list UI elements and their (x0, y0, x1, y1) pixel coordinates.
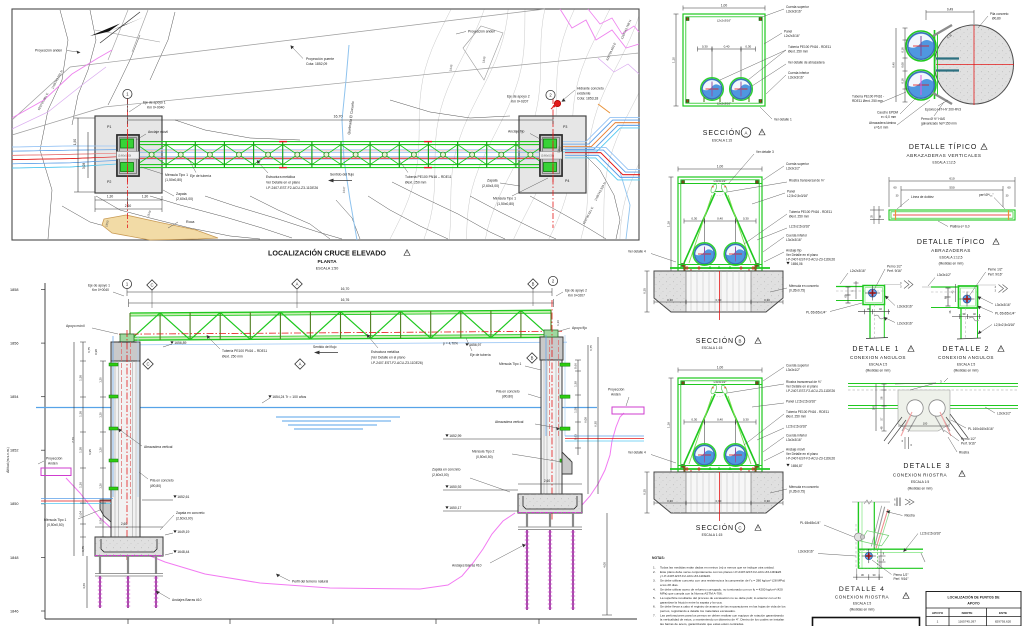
svg-text:B: B (531, 356, 534, 361)
svg-text:Riostra transversal de ⅜": Riostra transversal de ⅜" (786, 380, 822, 384)
svg-text:I-P-2407-EST-F2-ACU-Z3-11DE26: I-P-2407-EST-F2-ACU-Z3-11DE26 (786, 389, 835, 393)
svg-text:Andén: Andén (611, 393, 621, 397)
svg-text:la verticalidad de estos, y ma: la verticalidad de estos, y manteniendo … (660, 618, 785, 622)
svg-text:100: 100 (923, 422, 928, 426)
svg-text:1654,24 Tr = 100 años: 1654,24 Tr = 100 años (272, 395, 306, 399)
svg-text:ABRAZADERAS: ABRAZADERAS (931, 248, 971, 253)
svg-text:Eje de apoyo 2: Eje de apoyo 2 (507, 95, 530, 99)
svg-text:ESCALA 1:15: ESCALA 1:15 (702, 533, 723, 537)
svg-text:6,75: 6,75 (589, 345, 593, 351)
svg-text:1656,06: 1656,06 (791, 262, 803, 266)
svg-text:ESCALA 1:15: ESCALA 1:15 (712, 139, 732, 143)
svg-text:0,54: 0,54 (99, 518, 103, 524)
svg-text:Perno 1/2": Perno 1/2" (988, 268, 1003, 272)
svg-text:Ver detalle de abrazadera: Ver detalle de abrazadera (788, 61, 825, 65)
svg-text:ESCALA 1:12,5: ESCALA 1:12,5 (940, 256, 963, 260)
svg-text:16,70: 16,70 (334, 115, 343, 119)
svg-text:(2,60x3,00): (2,60x3,00) (176, 517, 193, 521)
svg-text:0,90: 0,90 (716, 298, 722, 302)
svg-text:Ménsula Tipo 2: Ménsula Tipo 2 (472, 450, 495, 454)
svg-text:Sentido del flujo: Sentido del flujo (313, 345, 337, 349)
svg-text:0,40: 0,40 (717, 417, 723, 421)
svg-text:existente: existente (577, 92, 591, 96)
svg-text:CONEXION RIOSTRA: CONEXION RIOSTRA (835, 595, 890, 600)
svg-text:Abrazadera lámina: Abrazadera lámina (869, 121, 896, 125)
svg-text:L3x3x1/2": L3x3x1/2" (786, 167, 800, 171)
svg-text:las barras de acero, garantiza: las barras de acero, garantizando que es… (660, 622, 744, 626)
svg-text:Abrazadera vertical: Abrazadera vertical (144, 445, 173, 449)
svg-text:6,30: 6,30 (594, 421, 598, 427)
svg-text:Estructura metálica: Estructura metálica (266, 175, 295, 179)
svg-text:C: C (150, 283, 153, 288)
svg-text:Anclajes Barras #10: Anclajes Barras #10 (172, 598, 202, 602)
svg-text:1,16: 1,16 (667, 422, 671, 428)
svg-text:Ménsula Tipo 1: Ménsula Tipo 1 (493, 197, 516, 201)
svg-text:Zapata: Zapata (487, 179, 498, 183)
svg-text:Anclaje móvil: Anclaje móvil (148, 130, 168, 134)
svg-text:(Medidas en mm): (Medidas en mm) (850, 608, 875, 612)
svg-text:P4: P4 (565, 179, 569, 183)
svg-text:Riostra: Riostra (959, 451, 969, 455)
svg-text:LOCALIZACIÓN DE PUNTOS DE: LOCALIZACIÓN DE PUNTOS DE (948, 595, 1001, 600)
svg-text:Abrazadera vertical: Abrazadera vertical (495, 420, 524, 424)
svg-text:CONEXION ANGULOS: CONEXION ANGULOS (850, 355, 906, 360)
svg-text:P2: P2 (107, 180, 111, 184)
svg-text:Caucho EPDM: Caucho EPDM (877, 111, 898, 115)
svg-text:APOYO: APOYO (967, 602, 980, 606)
svg-text:Ver detalle 4: Ver detalle 4 (628, 250, 646, 254)
svg-text:Línea de doblez: Línea de doblez (911, 195, 934, 199)
svg-text:1852: 1852 (10, 449, 18, 453)
svg-text:Km 0+0040: Km 0+0040 (92, 288, 109, 292)
svg-text:1,26: 1,26 (99, 447, 103, 453)
svg-text:ESCALA 1:5: ESCALA 1:5 (853, 602, 871, 606)
svg-text:Tubería PE100 PN16 - RDE11: Tubería PE100 PN16 - RDE11 (786, 410, 829, 414)
svg-text:Cuerda superior: Cuerda superior (786, 364, 810, 368)
svg-text:0,30: 0,30 (691, 417, 697, 421)
svg-text:1656,89: 1656,89 (174, 341, 186, 345)
svg-text:Tubería PE100 PN16 – RDE11: Tubería PE100 PN16 – RDE11 (405, 175, 452, 179)
svg-text:DETALLE 2: DETALLE 2 (942, 346, 989, 353)
svg-text:e=6,0 mm: e=6,0 mm (874, 126, 889, 130)
svg-text:L2,5x2,5x3/16": L2,5x2,5x3/16" (786, 425, 807, 429)
svg-text:1,38: 1,38 (574, 381, 578, 387)
svg-text:1,38: 1,38 (79, 447, 83, 453)
svg-text:1,30: 1,30 (107, 195, 114, 199)
svg-text:1,30: 1,30 (142, 195, 149, 199)
svg-text:3,08: 3,08 (82, 163, 86, 169)
svg-text:A: A (299, 362, 302, 367)
svg-text:(1,50x0,80): (1,50x0,80) (165, 178, 182, 182)
svg-text:1856: 1856 (10, 342, 18, 346)
svg-text:1,26: 1,26 (79, 482, 83, 488)
svg-text:galvanizado hef=150 mm: galvanizado hef=150 mm (921, 122, 957, 126)
svg-text:SECCIÓN: SECCIÓN (703, 128, 741, 137)
svg-text:Tubería PE100 PN16 - RDE11: Tubería PE100 PN16 - RDE11 (788, 45, 831, 49)
svg-text:6,75: 6,75 (87, 347, 91, 353)
svg-text:1846: 1846 (10, 609, 18, 613)
svg-text:(Ø0,80): (Ø0,80) (502, 395, 513, 399)
svg-text:0,30: 0,30 (743, 216, 749, 220)
svg-text:Ver detalle 1: Ver detalle 1 (774, 118, 792, 122)
svg-text:Se debe utilizar concreto con: Se debe utilizar concreto con una resist… (660, 579, 785, 583)
svg-text:(1,50x0,80): (1,50x0,80) (497, 202, 514, 206)
svg-text:L2,5x2,5x3/16": L2,5x2,5x3/16" (789, 225, 810, 229)
svg-text:Apoyo fijo: Apoyo fijo (572, 326, 587, 330)
svg-text:DETALLE TÍPICO: DETALLE TÍPICO (917, 237, 985, 246)
svg-text:PL 65x65x1/4": PL 65x65x1/4" (995, 312, 1016, 316)
svg-text:1,38: 1,38 (79, 411, 83, 417)
svg-text:Perf. 9/16": Perf. 9/16" (961, 442, 976, 446)
svg-text:Cuerda inferior: Cuerda inferior (786, 434, 808, 438)
svg-text:1647: 1647 (342, 186, 347, 193)
svg-text:1854: 1854 (10, 395, 18, 399)
svg-text:0,30: 0,30 (667, 499, 673, 503)
svg-text:L3x3x1/2": L3x3x1/2" (937, 273, 951, 277)
svg-text:LOCALIZACIÓN CRUCE ELEVADO: LOCALIZACIÓN CRUCE ELEVADO (268, 249, 386, 258)
svg-text:A: A (745, 131, 748, 136)
svg-text:Proyección puente: Proyección puente (306, 57, 334, 61)
svg-text:CONEXION RIOSTRA: CONEXION RIOSTRA (893, 473, 948, 478)
svg-text:160: 160 (872, 405, 876, 410)
svg-text:829793,620: 829793,620 (995, 620, 1012, 624)
svg-text:5.: 5. (653, 596, 656, 600)
svg-text:APOYO: APOYO (932, 611, 944, 615)
svg-text:0,40: 0,40 (717, 216, 723, 220)
svg-text:1,00: 1,00 (721, 3, 728, 7)
svg-text:0,30: 0,30 (691, 216, 697, 220)
svg-text:Anclaje fijo: Anclaje fijo (508, 130, 525, 134)
svg-text:4.: 4. (653, 587, 656, 591)
svg-text:L3x3x1/2": L3x3x1/2" (714, 179, 727, 183)
svg-text:Cuerda inferior: Cuerda inferior (786, 234, 808, 238)
svg-text:2,60: 2,60 (544, 479, 550, 483)
svg-text:Pila en concreto: Pila en concreto (150, 479, 174, 483)
svg-text:perf Ø⁹/₁₆": perf Ø⁹/₁₆" (979, 193, 994, 197)
svg-text:DETALLE 4: DETALLE 4 (839, 586, 885, 593)
svg-text:4,66: 4,66 (82, 583, 86, 589)
svg-text:Proyección: Proyección (46, 457, 62, 461)
svg-text:60: 60 (1007, 186, 1011, 190)
svg-text:L2x2x3/16": L2x2x3/16" (717, 19, 731, 23)
svg-text:(Ver Detalle en el plano: (Ver Detalle en el plano (371, 356, 405, 360)
svg-text:garantizar la fricción entre l: garantizar la fricción entre la zapata y… (660, 600, 723, 604)
svg-text:(Medidas en mm): (Medidas en mm) (866, 369, 891, 373)
svg-text:SECCIÓN: SECCIÓN (696, 336, 734, 345)
svg-text:B: B (739, 339, 742, 344)
svg-text:1,04: 1,04 (79, 511, 83, 517)
svg-text:0,30: 0,30 (667, 298, 673, 302)
svg-text:1650,17: 1650,17 (449, 506, 461, 510)
svg-text:Ver Detalle en el plano: Ver Detalle en el plano (786, 452, 818, 456)
svg-text:Riostra: Riostra (905, 514, 915, 518)
svg-text:L3x3x3/16": L3x3x3/16" (897, 305, 913, 309)
svg-text:a los 28 días.: a los 28 días. (660, 583, 679, 587)
svg-text:1.: 1. (653, 566, 656, 570)
svg-text:(2,60x3,00): (2,60x3,00) (482, 184, 499, 188)
svg-text:L2x2x3/16": L2x2x3/16" (897, 322, 913, 326)
svg-text:Anclajes Barras #10: Anclajes Barras #10 (452, 564, 482, 568)
svg-text:Øext. 250 mm: Øext. 250 mm (788, 50, 808, 54)
svg-text:0,30: 0,30 (743, 417, 749, 421)
svg-text:DETALLE 3: DETALLE 3 (903, 463, 950, 470)
svg-text:Tubería PE100 PN16 – RDE11: Tubería PE100 PN16 – RDE11 (222, 349, 267, 353)
svg-text:Perf. 9/16": Perf. 9/16" (988, 272, 1003, 276)
svg-text:2,60: 2,60 (125, 204, 132, 208)
svg-text:L2x2x3/16": L2x2x3/16" (784, 34, 800, 38)
svg-text:Ver detalle 3: Ver detalle 3 (756, 150, 774, 154)
svg-text:0,49: 0,49 (947, 8, 953, 12)
svg-text:pernos, registrando a detalle: pernos, registrando a detalle los materi… (660, 609, 736, 613)
svg-text:1,00: 1,00 (717, 164, 724, 168)
svg-text:Anclaje móvil: Anclaje móvil (786, 448, 805, 452)
svg-text:1652,99: 1652,99 (449, 434, 461, 438)
svg-text:1,16: 1,16 (667, 221, 671, 227)
svg-text:ESCALA 1:5: ESCALA 1:5 (869, 363, 887, 367)
svg-text:60: 60 (893, 186, 897, 190)
svg-text:Altitud (m.s.n.m.): Altitud (m.s.n.m.) (6, 447, 10, 473)
svg-text:Zapata en concreto: Zapata en concreto (432, 468, 461, 472)
svg-text:I-P-2407-EST-F2-ACU-Z3-11DE26: I-P-2407-EST-F2-ACU-Z3-11DE26 (786, 457, 835, 461)
svg-text:y I-P-2407-EST-F2-ACU-Z3-11DE2: y I-P-2407-EST-F2-ACU-Z3-11DE26. (660, 574, 711, 578)
svg-text:Roca: Roca (186, 220, 194, 224)
svg-text:1: 1 (937, 620, 939, 624)
svg-text:Ménsula Tipo 1: Ménsula Tipo 1 (499, 362, 522, 366)
svg-text:ESCALA 1:15: ESCALA 1:15 (702, 346, 723, 350)
svg-text:Eje de tubería: Eje de tubería (190, 174, 211, 178)
svg-text:(0,50x0,50): (0,50x0,50) (476, 455, 493, 459)
svg-text:0,16: 0,16 (901, 78, 905, 84)
svg-text:Ménsula Tipo 1: Ménsula Tipo 1 (44, 518, 67, 522)
svg-text:MPa) que cumpla con la Norma: MPa) que cumpla con la Norma ASTM A-706. (660, 592, 723, 596)
svg-text:(0,35x0,75): (0,35x0,75) (789, 490, 805, 494)
svg-text:L2,5x2,5x3/16": L2,5x2,5x3/16" (920, 532, 941, 536)
svg-text:L3x3x3/16": L3x3x3/16" (798, 550, 814, 554)
svg-text:16,76: 16,76 (341, 298, 350, 302)
svg-text:ESTE: ESTE (999, 611, 1007, 615)
svg-text:3.: 3. (653, 579, 656, 583)
svg-text:1650,92: 1650,92 (449, 485, 461, 489)
svg-text:I-P-2407-EST-F2-ACU-Z3-11DE26): I-P-2407-EST-F2-ACU-Z3-11DE26) (371, 361, 423, 365)
svg-text:Ø0,80: Ø0,80 (992, 17, 1001, 21)
svg-text:550: 550 (949, 186, 954, 190)
svg-text:Øext. 250 mm: Øext. 250 mm (222, 355, 243, 359)
svg-text:6,35: 6,35 (643, 288, 647, 294)
svg-text:Eje de apoyo 1: Eje de apoyo 1 (88, 284, 110, 288)
svg-text:PL 160x160x3/16": PL 160x160x3/16" (968, 427, 994, 431)
svg-text:Ménsula en concreto: Ménsula en concreto (789, 485, 819, 489)
svg-text:ABRAZADERAS VERTICALES: ABRAZADERAS VERTICALES (907, 153, 982, 158)
svg-text:Perf. 9/16": Perf. 9/16" (887, 269, 902, 273)
svg-text:Perf. 9/16": Perf. 9/16" (894, 577, 909, 581)
svg-text:0,66: 0,66 (574, 363, 578, 369)
svg-text:L3x3x3/16": L3x3x3/16" (786, 10, 802, 14)
svg-text:L3x3x1/2": L3x3x1/2" (997, 412, 1011, 416)
svg-text:Ménsula en concreto: Ménsula en concreto (789, 284, 819, 288)
svg-text:C: C (146, 362, 149, 367)
svg-text:6,75: 6,75 (81, 546, 85, 552)
svg-text:(Medidas en mm): (Medidas en mm) (939, 262, 964, 266)
svg-text:0,30: 0,30 (702, 44, 708, 48)
svg-text:0,08: 0,08 (901, 62, 905, 68)
svg-text:7.: 7. (653, 613, 656, 617)
svg-text:16,70: 16,70 (341, 287, 350, 291)
svg-text:(Medidas en mm): (Medidas en mm) (954, 369, 979, 373)
svg-text:Panel: Panel (784, 30, 792, 34)
svg-text:Cota: 1852,09: Cota: 1852,09 (306, 62, 327, 66)
svg-text:0,30: 0,30 (745, 44, 751, 48)
svg-text:Riostra transversal de ⅜": Riostra transversal de ⅜" (789, 179, 825, 183)
svg-text:L3x3x3/16": L3x3x3/16" (788, 76, 804, 80)
svg-text:I-P-2407-EST-F2-ACU-Z3-11DE26: I-P-2407-EST-F2-ACU-Z3-11DE26 (786, 258, 835, 262)
svg-text:L3x3x1/2": L3x3x1/2" (786, 368, 800, 372)
svg-text:ESCALA 1:5: ESCALA 1:5 (957, 363, 975, 367)
svg-text:Km 0+0207: Km 0+0207 (568, 294, 585, 298)
svg-text:DETALLE TÍPICO: DETALLE TÍPICO (909, 142, 977, 151)
svg-text:ESCALA 1:12,5: ESCALA 1:12,5 (933, 161, 956, 165)
svg-text:Proyección anden: Proyección anden (35, 49, 62, 53)
svg-text:Pila concreto: Pila concreto (990, 12, 1009, 16)
svg-text:0,16: 0,16 (901, 47, 905, 53)
svg-text:6.: 6. (653, 605, 656, 609)
svg-text:L3x3x3/16": L3x3x3/16" (786, 438, 802, 442)
svg-text:NOTAS:: NOTAS: (652, 556, 665, 560)
svg-text:L2,5x2,5x3/16": L2,5x2,5x3/16" (994, 323, 1015, 327)
svg-text:P1: P1 (107, 125, 111, 129)
svg-text:Pila en concreto: Pila en concreto (496, 390, 520, 394)
svg-text:6,95: 6,95 (88, 449, 92, 455)
svg-text:Ver Detalle en el plano: Ver Detalle en el plano (786, 385, 818, 389)
svg-text:Todas las medidas están dadas: Todas las medidas están dadas en metros … (660, 566, 775, 570)
svg-text:NORTE: NORTE (962, 611, 973, 615)
svg-text:Km 0+0207: Km 0+0207 (511, 100, 529, 104)
svg-text:1,38: 1,38 (79, 375, 83, 381)
svg-text:Tubería PE100 PN16 - RDE11: Tubería PE100 PN16 - RDE11 (789, 210, 832, 214)
svg-text:CONEXION ANGULOS: CONEXION ANGULOS (938, 355, 994, 360)
svg-text:Perno 1/2": Perno 1/2" (894, 573, 909, 577)
svg-text:2.: 2. (653, 570, 656, 574)
svg-text:0,63: 0,63 (574, 434, 578, 440)
svg-text:PL 65x65x1/4": PL 65x65x1/4" (800, 521, 821, 525)
svg-text:Øext. 250 mm: Øext. 250 mm (405, 181, 426, 185)
svg-text:Apoyo móvil: Apoyo móvil (66, 324, 85, 328)
svg-text:7,76: 7,76 (71, 437, 75, 443)
svg-text:Eje de apoyo 1: Eje de apoyo 1 (143, 101, 166, 105)
svg-text:Estructura metálica: Estructura metálica (371, 350, 399, 354)
svg-text:Tubería PE100 PN16 -: Tubería PE100 PN16 - (852, 95, 884, 99)
svg-text:PL 65x65x1/4": PL 65x65x1/4" (806, 311, 827, 315)
svg-text:Ver Detalle en el plano: Ver Detalle en el plano (786, 253, 818, 257)
svg-text:1,26: 1,26 (99, 483, 103, 489)
svg-text:SECCIÓN: SECCIÓN (696, 523, 734, 532)
svg-text:Perno Ø ½" HAS: Perno Ø ½" HAS (921, 117, 945, 121)
svg-text:Zapata: Zapata (176, 192, 187, 196)
svg-text:4,00: 4,00 (603, 562, 607, 568)
svg-text:Sentido del flujo: Sentido del flujo (330, 173, 354, 177)
svg-text:L3x3x3/16": L3x3x3/16" (995, 303, 1011, 307)
svg-text:Panel: Panel (787, 190, 795, 194)
svg-text:Platina e= 6,0: Platina e= 6,0 (950, 225, 970, 229)
svg-text:2,60: 2,60 (121, 522, 127, 526)
svg-text:p = 4,70%: p = 4,70% (443, 342, 458, 346)
svg-text:1858: 1858 (10, 288, 18, 292)
svg-text:610: 610 (949, 177, 954, 181)
svg-text:1652,61: 1652,61 (177, 495, 189, 499)
svg-text:(Medidas en mm): (Medidas en mm) (908, 487, 933, 491)
svg-text:0,90: 0,90 (716, 499, 722, 503)
svg-text:0,40: 0,40 (892, 62, 896, 68)
svg-text:(Ø0,80): (Ø0,80) (150, 484, 161, 488)
svg-text:PLANTA: PLANTA (317, 259, 337, 265)
svg-text:Øext. 250 mm: Øext. 250 mm (789, 215, 809, 219)
svg-text:P3: P3 (563, 125, 567, 129)
svg-text:Proyección: Proyección (608, 388, 624, 392)
svg-text:Cuerda superior: Cuerda superior (786, 162, 810, 166)
svg-text:Ver Detalle en el plano: Ver Detalle en el plano (266, 181, 300, 185)
svg-text:e= 6,0 mm: e= 6,0 mm (881, 115, 896, 119)
svg-text:Cuerda superior: Cuerda superior (786, 5, 810, 9)
svg-text:Perfil del terreno natural: Perfil del terreno natural (292, 580, 328, 584)
svg-text:Km 0+0040: Km 0+0040 (147, 106, 165, 110)
svg-text:(2,60x3,00): (2,60x3,00) (432, 473, 449, 477)
svg-text:1656,97: 1656,97 (469, 343, 481, 347)
svg-text:6,35: 6,35 (643, 489, 647, 495)
svg-text:Øext. 250 mm: Øext. 250 mm (786, 415, 806, 419)
svg-text:0,98: 0,98 (94, 349, 98, 355)
svg-text:1,16: 1,16 (556, 320, 560, 326)
svg-text:(0,35x0,75): (0,35x0,75) (789, 289, 805, 293)
svg-text:1,10: 1,10 (672, 57, 676, 63)
svg-text:1,20: 1,20 (99, 412, 103, 418)
svg-text:Perno 1/2": Perno 1/2" (961, 437, 976, 441)
svg-text:A: A (296, 282, 299, 287)
svg-text:1656,87: 1656,87 (791, 464, 803, 468)
svg-text:Proyección anden: Proyección anden (468, 30, 495, 34)
svg-text:(0,50x0,50): (0,50x0,50) (47, 523, 64, 527)
svg-text:L3x3x1/2": L3x3x1/2" (714, 380, 727, 384)
svg-text:1649,19: 1649,19 (177, 530, 189, 534)
svg-text:(0,60x0,50): (0,60x0,50) (541, 154, 554, 158)
svg-text:Cota: 1853,18: Cota: 1853,18 (577, 97, 598, 101)
svg-text:1,00: 1,00 (717, 365, 724, 369)
svg-text:Zapata en concreto: Zapata en concreto (176, 511, 205, 515)
svg-text:Eje de tubería: Eje de tubería (470, 353, 491, 357)
svg-text:Hidrante concreto: Hidrante concreto (577, 87, 604, 91)
svg-text:1165745,397: 1165745,397 (958, 620, 976, 624)
svg-text:1,50: 1,50 (574, 407, 578, 413)
svg-text:L2x2x3/16": L2x2x3/16" (850, 269, 866, 273)
svg-text:L2x2x3/16": L2x2x3/16" (717, 102, 731, 106)
svg-text:ESCALA 1:5: ESCALA 1:5 (911, 480, 929, 484)
svg-text:1848: 1848 (10, 556, 18, 560)
svg-text:1648,44: 1648,44 (177, 550, 189, 554)
svg-text:0,40: 0,40 (724, 44, 730, 48)
svg-text:Andén: Andén (48, 462, 58, 466)
svg-text:0,30: 0,30 (764, 499, 770, 503)
svg-text:ESCALA 1:50: ESCALA 1:50 (316, 267, 339, 271)
svg-text:0,30: 0,30 (764, 298, 770, 302)
svg-text:Eje de apoyo 2: Eje de apoyo 2 (565, 289, 587, 293)
svg-text:L2,5x2,5x3/16": L2,5x2,5x3/16" (787, 194, 808, 198)
svg-text:Cuerda inferior: Cuerda inferior (788, 71, 810, 75)
svg-text:I-P-2407-EST-F2-ACU-Z3-11DE26: I-P-2407-EST-F2-ACU-Z3-11DE26 (266, 186, 318, 190)
svg-text:1,20: 1,20 (99, 377, 103, 383)
svg-text:Anclaje fijo: Anclaje fijo (786, 249, 802, 253)
svg-text:6,08: 6,08 (584, 417, 588, 423)
svg-text:B: B (532, 282, 535, 287)
svg-text:RDE11 Øext. 250 mm: RDE11 Øext. 250 mm (852, 99, 883, 103)
svg-text:Perno 1/2": Perno 1/2" (887, 265, 902, 269)
